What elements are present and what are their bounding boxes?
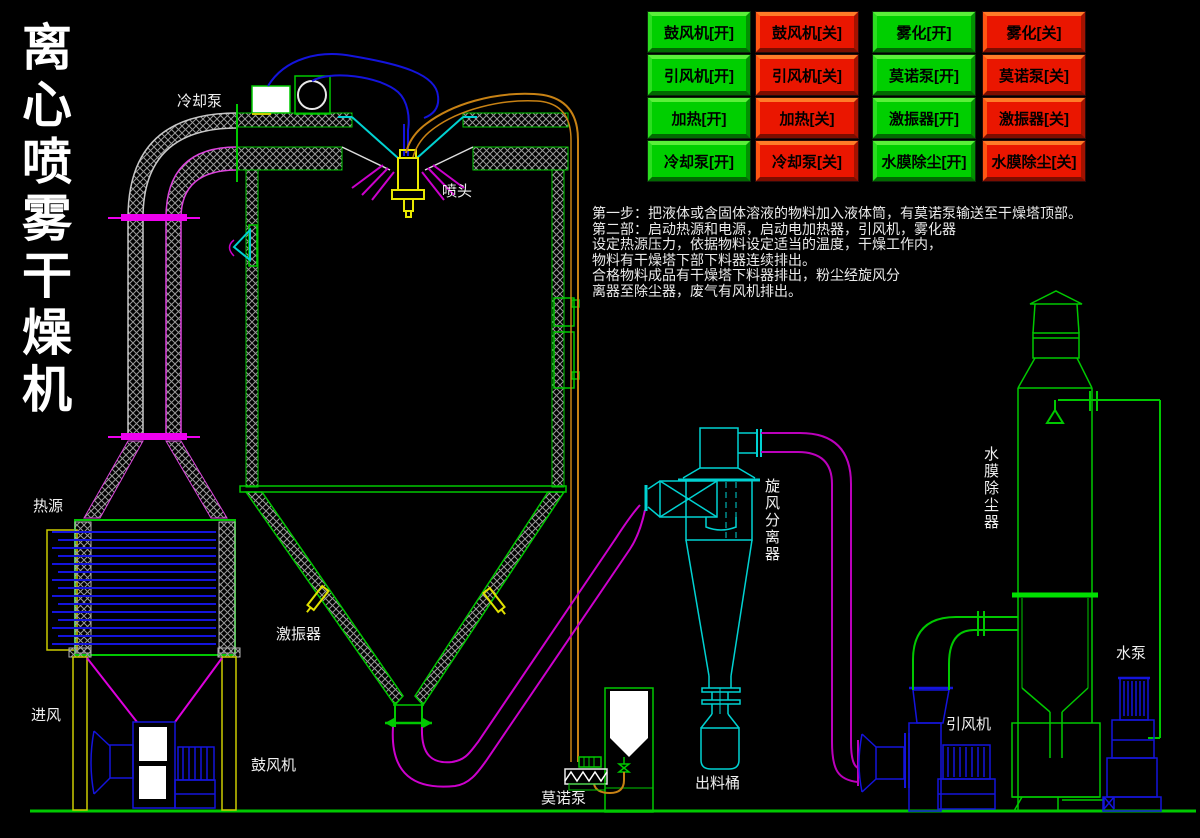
title-char: 雾: [22, 191, 72, 248]
cooling-pump-label: 冷却泵: [177, 90, 222, 111]
btn-heater-off[interactable]: 加热[关]: [756, 98, 858, 138]
scrubber: [1012, 291, 1114, 811]
cyclone-separator: [646, 428, 761, 714]
induced-fan: [859, 688, 995, 811]
fan-outlet-elbow: [913, 611, 1018, 690]
title-char: 心: [22, 77, 72, 134]
cooling-water-pipes: [268, 54, 438, 156]
btn-vibrator-on[interactable]: 激振器[开]: [873, 98, 975, 138]
liquid-tank: [594, 688, 653, 812]
hot-air-duct: [84, 113, 237, 518]
mono-pump-label: 莫诺泵: [541, 787, 586, 808]
btn-atomizer-on[interactable]: 雾化[开]: [873, 12, 975, 52]
btn-blower-off[interactable]: 鼓风机[关]: [756, 12, 858, 52]
title-char: 喷: [22, 134, 72, 191]
spray-head-label: 喷头: [442, 180, 472, 201]
btn-water-film-on[interactable]: 水膜除尘[开]: [873, 141, 975, 181]
btn-cooling-pump-on[interactable]: 冷却泵[开]: [648, 141, 750, 181]
water-pipe: [1047, 391, 1160, 738]
heater: [47, 520, 235, 655]
instruction-line: 第二部：启动热源和电源，启动电加热器，引风机，雾化器: [592, 222, 1197, 238]
title-char: 干: [22, 248, 72, 305]
btn-mono-pump-off[interactable]: 莫诺泵[关]: [983, 55, 1085, 95]
instruction-line: 设定热源压力，依据物料设定适当的温度，干燥工作内，: [592, 237, 1197, 253]
discharge-barrel-label: 出料桶: [695, 772, 740, 793]
instruction-line: 合格物料成品有干燥塔下料器排出，粉尘经旋风分: [592, 268, 1197, 284]
instruction-line: 物料有干燥塔下部下料器连续排出。: [592, 253, 1197, 269]
heat-source-label: 热源: [33, 495, 63, 516]
water-pump: [1103, 678, 1161, 811]
btn-heater-on[interactable]: 加热[开]: [648, 98, 750, 138]
btn-cooling-pump-off[interactable]: 冷却泵[关]: [756, 141, 858, 181]
induced-fan-label: 引风机: [946, 713, 991, 734]
title-char: 离: [22, 20, 72, 77]
cooling-pump: [252, 76, 330, 114]
btn-blower-on[interactable]: 鼓风机[开]: [648, 12, 750, 52]
operating-instructions: 第一步：把液体或含固体溶液的物料加入液体筒，有莫诺泵输送至干燥塔顶部。 第二部：…: [592, 206, 1197, 300]
page-title: 离 心 喷 雾 干 燥 机: [22, 20, 72, 419]
title-char: 机: [22, 362, 72, 419]
title-char: 燥: [22, 305, 72, 362]
water-pump-label: 水泵: [1116, 642, 1146, 663]
btn-mono-pump-on[interactable]: 莫诺泵[开]: [873, 55, 975, 95]
cyclone-label: 旋风分离器: [761, 478, 782, 563]
hmi-screen: 离 心 喷 雾 干 燥 机 鼓风机[开] 鼓风机[关] 雾化[开] 雾化[关] …: [0, 0, 1200, 838]
instruction-line: 第一步：把液体或含固体溶液的物料加入液体筒，有莫诺泵输送至干燥塔顶部。: [592, 206, 1197, 222]
instruction-line: 离器至除尘器，废气有风机排出。: [592, 284, 1197, 300]
btn-induced-fan-off[interactable]: 引风机[关]: [756, 55, 858, 95]
air-inlet-label: 进风: [31, 704, 61, 725]
btn-vibrator-off[interactable]: 激振器[关]: [983, 98, 1085, 138]
blower-label: 鼓风机: [251, 754, 296, 775]
btn-water-film-off[interactable]: 水膜除尘[关]: [983, 141, 1085, 181]
scrubber-label: 水膜除尘器: [980, 446, 1001, 531]
btn-atomizer-off[interactable]: 雾化[关]: [983, 12, 1085, 52]
air-intake-blower: [69, 648, 240, 810]
btn-induced-fan-on[interactable]: 引风机[开]: [648, 55, 750, 95]
vibrator-label: 激振器: [276, 623, 321, 644]
